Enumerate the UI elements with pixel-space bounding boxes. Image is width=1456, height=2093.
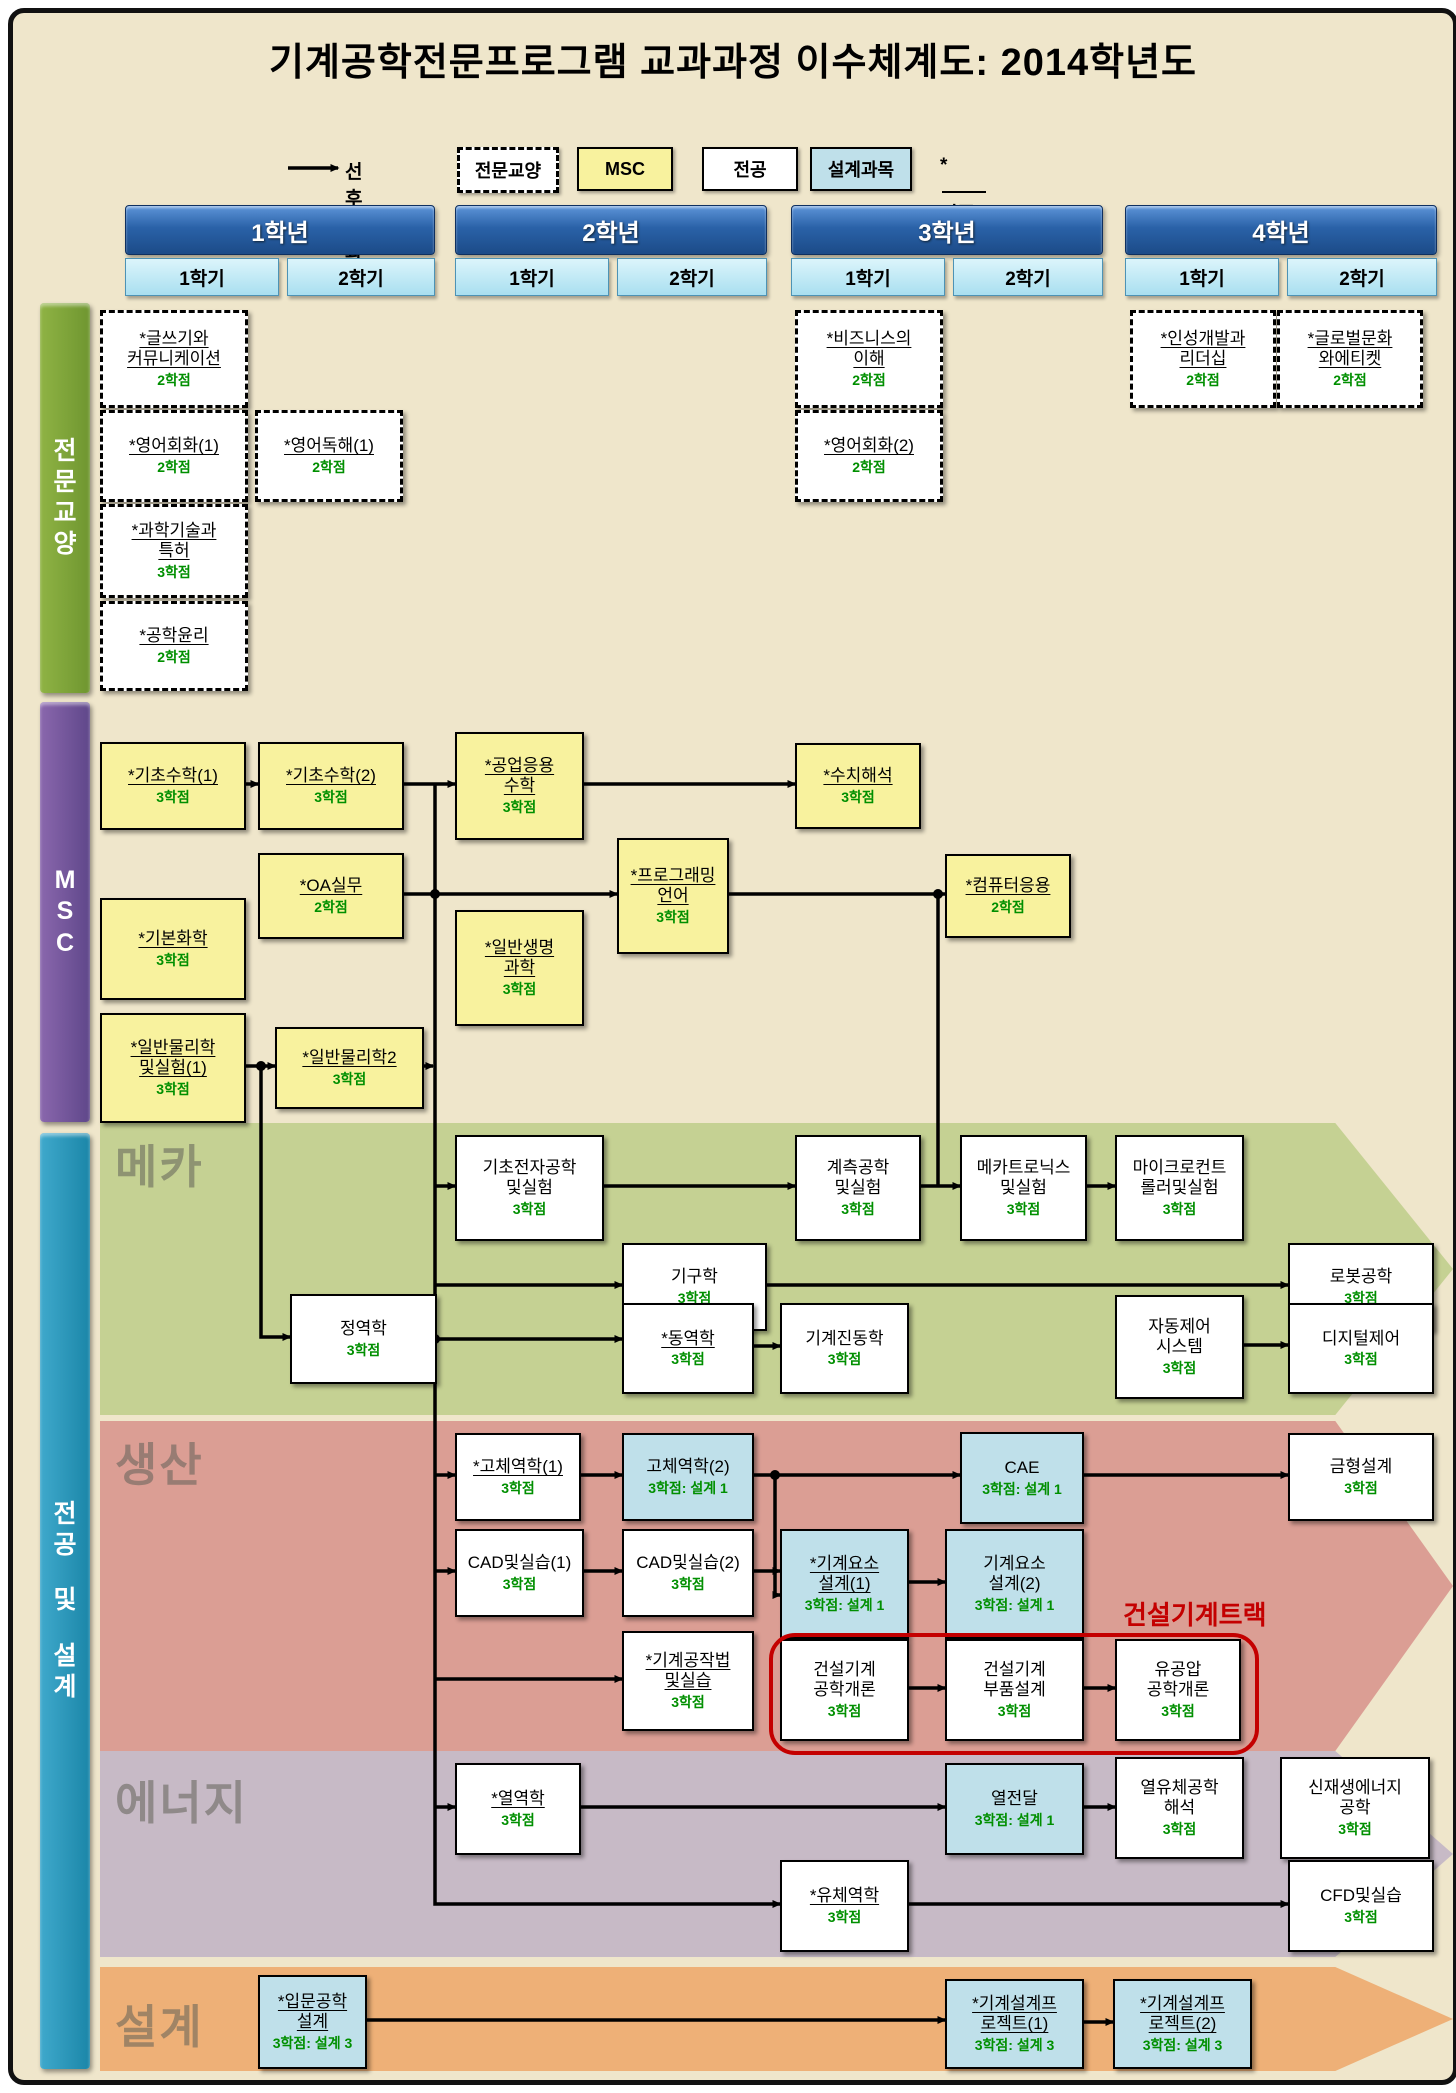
sidebar-char: 문 (53, 467, 76, 498)
course-box-mech-design-project-2: *기계설계프로젝트(2)3학점: 설계 3 (1113, 1979, 1252, 2069)
course-name: 언어 (657, 886, 688, 907)
course-credit: 2학점 (157, 649, 191, 666)
course-box-cad-practice-1: CAD및실습(1)3학점 (455, 1529, 584, 1617)
semester-header-2-2: 2학기 (617, 258, 767, 296)
course-name: 과학 (504, 958, 535, 979)
course-name: 기구학 (671, 1267, 718, 1288)
band-label-design: 설계 (115, 1991, 204, 2057)
sidebar-msc: MSC (40, 702, 90, 1122)
sidebar-char: M (55, 865, 76, 896)
course-name: 기계요소 (983, 1554, 1046, 1575)
semester-header-3-2: 2학기 (953, 258, 1103, 296)
course-credit: 2학점 (852, 372, 886, 389)
course-box-heat-transfer: 열전달3학점: 설계 1 (945, 1763, 1084, 1855)
course-name: 계측공학 (827, 1158, 890, 1179)
course-box-digital-control: 디지털제어3학점 (1288, 1303, 1434, 1394)
course-box-basic-math-2: *기초수학(2)3학점 (258, 742, 404, 830)
construction-track-outline (769, 1633, 1259, 1755)
sidebar-liberal-arts: 전문교양 (40, 303, 90, 693)
course-name: *입문공학 (278, 1992, 347, 2013)
course-credit: 3학점: 설계 1 (982, 1481, 1062, 1498)
course-name: *기본화학 (138, 929, 207, 950)
legend-cert-star: * (940, 155, 947, 176)
course-box-statics: 정역학3학점 (290, 1294, 437, 1384)
course-credit: 3학점 (841, 789, 875, 806)
course-credit: 3학점 (1007, 1201, 1041, 1218)
page-frame: 기계공학전문프로그램 교과과정 이수체계도: 2014학년도 선후수과목 전문교… (8, 8, 1456, 2085)
course-credit: 3학점 (501, 1480, 535, 1497)
course-credit: 3학점: 설계 1 (975, 1812, 1055, 1829)
course-name: *비즈니스의 (827, 329, 912, 350)
legend-major-label: 전공 (733, 156, 766, 182)
course-name: *일반물리학2 (302, 1048, 396, 1069)
course-box-solid-mechanics-2: 고체역학(2)3학점: 설계 1 (622, 1433, 754, 1521)
course-credit: 3학점 (656, 909, 690, 926)
course-box-general-physics-lab-1: *일반물리학및실험(1)3학점 (100, 1013, 246, 1123)
course-box-dynamics: *동역학3학점 (622, 1303, 754, 1394)
diagram-stage: 기계공학전문프로그램 교과과정 이수체계도: 2014학년도 선후수과목 전문교… (8, 8, 1456, 2085)
course-name: *일반생명 (485, 938, 554, 959)
year-header-2: 2학년 (455, 205, 767, 255)
course-name: *영어회화(2) (824, 436, 914, 457)
course-name: *영어독해(1) (284, 436, 374, 457)
course-credit: 3학점 (347, 1342, 381, 1359)
course-box-science-tech-patent: *과학기술과특허3학점 (100, 504, 248, 598)
legend-liberal-box: 전문교양 (457, 147, 559, 193)
course-name: *컴퓨터응용 (966, 876, 1051, 897)
course-box-engineering-math: *공업응용수학3학점 (455, 732, 584, 840)
sidebar-char: C (56, 928, 74, 959)
course-name: *기초수학(1) (128, 766, 218, 787)
sidebar-char: 전 (53, 1499, 76, 1530)
course-credit: 3학점 (828, 1351, 862, 1368)
course-name: 열유체공학 (1140, 1778, 1218, 1799)
course-name: *인성개발과 (1161, 329, 1246, 350)
band-energy (100, 1751, 1453, 1957)
course-name: 설계 (297, 2012, 328, 2033)
course-name: *글로벌문화 (1308, 329, 1393, 350)
course-name: 로젝트(2) (1149, 2014, 1217, 2035)
page-title: 기계공학전문프로그램 교과과정 이수체계도: 2014학년도 (8, 31, 1456, 86)
course-name: CFD및실습 (1320, 1886, 1402, 1907)
course-credit: 3학점: 설계 1 (975, 1597, 1055, 1614)
year-header-1: 1학년 (125, 205, 435, 255)
semester-header-4-1: 1학기 (1125, 258, 1279, 296)
semester-header-1-1: 1학기 (125, 258, 279, 296)
course-name: 이해 (853, 349, 884, 370)
course-credit: 3학점 (314, 789, 348, 806)
course-name: 정역학 (340, 1319, 387, 1340)
course-credit: 3학점 (503, 1576, 537, 1593)
course-box-intro-engineering-design: *입문공학설계3학점: 설계 3 (258, 1975, 367, 2069)
course-name: 및실습 (665, 1671, 712, 1692)
course-name: 메카트로닉스 (977, 1158, 1071, 1179)
legend-liberal-label: 전문교양 (475, 157, 541, 183)
course-name: CAD및실습(2) (636, 1553, 740, 1574)
course-box-programming-language: *프로그래밍언어3학점 (617, 838, 729, 954)
course-name: 설계(2) (988, 1574, 1040, 1595)
semester-header-4-2: 2학기 (1287, 258, 1437, 296)
course-credit: 3학점 (1163, 1201, 1197, 1218)
course-credit: 2학점 (312, 459, 346, 476)
course-box-automatic-control-systems: 자동제어시스템3학점 (1115, 1295, 1244, 1399)
course-name: *기계공작법 (646, 1651, 731, 1672)
course-credit: 2학점 (1186, 372, 1220, 389)
course-name: *공업응용 (485, 756, 554, 777)
band-label-energy: 에너지 (115, 1767, 248, 1833)
course-box-oa-practice: *OA실무2학점 (258, 853, 404, 939)
course-box-cfd-practice: CFD및실습3학점 (1288, 1860, 1434, 1952)
course-box-solid-mechanics-1: *고체역학(1)3학점 (455, 1433, 581, 1521)
course-name: 마이크로컨트 (1133, 1158, 1227, 1179)
course-name: 커뮤니케이션 (127, 349, 221, 370)
course-box-machine-element-design-1: *기계요소설계(1)3학점: 설계 1 (780, 1529, 909, 1639)
course-name: *열역학 (491, 1789, 545, 1810)
course-box-instrumentation-lab: 계측공학및실험3학점 (795, 1135, 921, 1241)
course-credit: 3학점: 설계 1 (805, 1597, 885, 1614)
course-credit: 3학점 (1163, 1821, 1197, 1838)
band-label-mechatronics: 메카 (115, 1131, 204, 1197)
junction-dot (430, 889, 440, 899)
sidebar-char: 공 (53, 1530, 76, 1561)
course-box-english-reading-1: *영어독해(1)2학점 (255, 410, 403, 502)
course-name: *고체역학(1) (473, 1457, 563, 1478)
legend-cert-line (942, 177, 986, 193)
course-name: 리더십 (1180, 349, 1227, 370)
course-name: CAD및실습(1) (468, 1553, 572, 1574)
junction-dot (933, 889, 943, 899)
course-name: 기초전자공학 (483, 1158, 577, 1179)
course-name: 열전달 (991, 1789, 1038, 1810)
course-name: 및실험 (506, 1178, 553, 1199)
course-credit: 3학점 (671, 1694, 705, 1711)
course-name: *수치해석 (823, 766, 892, 787)
course-name: 금형설계 (1330, 1457, 1393, 1478)
course-box-microcontroller-lab: 마이크로컨트롤러및실험3학점 (1115, 1135, 1244, 1241)
course-credit: 3학점 (157, 564, 191, 581)
course-name: *유체역학 (810, 1886, 879, 1907)
year-header-4: 4학년 (1125, 205, 1437, 255)
course-name: 자동제어 (1148, 1317, 1211, 1338)
course-name: 시스템 (1156, 1337, 1203, 1358)
course-credit: 3학점 (1344, 1480, 1378, 1497)
sidebar-char: 및 (53, 1585, 76, 1616)
course-name: *일반물리학 (131, 1038, 216, 1059)
course-name: *과학기술과 (132, 521, 217, 542)
semester-header-3-1: 1학기 (791, 258, 945, 296)
course-name: 공학 (1339, 1798, 1370, 1819)
construction-track-label: 건설기계트랙 (1123, 1595, 1267, 1632)
legend-design-label: 설계과목 (828, 156, 894, 182)
course-credit: 3학점: 설계 1 (648, 1480, 728, 1497)
sidebar-char: 전 (53, 436, 76, 467)
course-name: *기계요소 (810, 1554, 879, 1575)
course-box-machine-element-design-2: 기계요소설계(2)3학점: 설계 1 (945, 1529, 1084, 1639)
course-credit: 3학점 (503, 799, 537, 816)
course-name: 및실험 (1000, 1178, 1047, 1199)
course-credit: 3학점: 설계 3 (975, 2037, 1055, 2054)
course-credit: 2학점 (1333, 372, 1367, 389)
course-box-english-conv-2: *영어회화(2)2학점 (795, 410, 943, 502)
course-name: 기계진동학 (805, 1329, 883, 1350)
course-box-mech-design-project-1: *기계설계프로젝트(1)3학점: 설계 3 (945, 1979, 1084, 2069)
sidebar-char: 계 (53, 1672, 76, 1703)
course-name: 로봇공학 (1330, 1267, 1393, 1288)
course-name: 고체역학(2) (646, 1457, 729, 1478)
course-credit: 3학점 (1344, 1351, 1378, 1368)
course-name: *프로그래밍 (631, 866, 716, 887)
legend-msc-label: MSC (605, 159, 645, 180)
course-name: *기계설계프 (972, 1994, 1057, 2015)
legend-msc-box: MSC (577, 147, 673, 191)
course-name: *기초수학(2) (286, 766, 376, 787)
course-credit: 3학점 (841, 1201, 875, 1218)
course-name: 해석 (1164, 1798, 1195, 1819)
legend-design-box: 설계과목 (810, 147, 912, 191)
course-box-general-life-science: *일반생명과학3학점 (455, 910, 584, 1026)
course-box-thermofluid-analysis: 열유체공학해석3학점 (1115, 1757, 1244, 1859)
course-credit: 2학점 (314, 899, 348, 916)
course-box-general-physics-2: *일반물리학23학점 (275, 1027, 424, 1109)
course-credit: 3학점 (501, 1812, 535, 1829)
course-credit: 3학점 (503, 981, 537, 998)
sidebar-char: 양 (53, 529, 76, 560)
course-name: 디지털제어 (1322, 1329, 1400, 1350)
course-box-computer-application: *컴퓨터응용2학점 (945, 854, 1071, 938)
junction-dot (256, 1061, 266, 1071)
course-box-fluid-mechanics: *유체역학3학점 (780, 1860, 909, 1952)
course-credit: 3학점 (671, 1351, 705, 1368)
course-box-global-culture-etiquette: *글로벌문화와에티켓2학점 (1277, 310, 1423, 408)
course-box-basic-electronics-lab: 기초전자공학및실험3학점 (455, 1135, 604, 1241)
course-credit: 3학점 (333, 1071, 367, 1088)
course-credit: 3학점 (156, 952, 190, 969)
course-name: 특허 (158, 541, 189, 562)
course-box-machine-shop-practice: *기계공작법및실습3학점 (622, 1631, 754, 1731)
course-credit: 3학점 (1344, 1909, 1378, 1926)
course-box-writing-communication: *글쓰기와커뮤니케이션2학점 (100, 310, 248, 408)
course-box-basic-math-1: *기초수학(1)3학점 (100, 742, 246, 830)
course-box-personality-leadership: *인성개발과리더십2학점 (1130, 310, 1276, 408)
course-name: *동역학 (661, 1329, 715, 1350)
course-credit: 3학점 (1338, 1821, 1372, 1838)
course-name: *글쓰기와 (139, 329, 208, 350)
course-name: *공학윤리 (139, 626, 208, 647)
year-header-3: 3학년 (791, 205, 1103, 255)
course-name: 및실험(1) (139, 1058, 207, 1079)
course-name: CAE (1005, 1458, 1040, 1479)
course-name: *OA실무 (300, 876, 362, 897)
band-label-production: 생산 (115, 1429, 204, 1495)
course-credit: 3학점: 설계 3 (1143, 2037, 1223, 2054)
course-name: *영어회화(1) (129, 436, 219, 457)
legend-major-box: 전공 (702, 147, 798, 191)
course-box-business-understanding: *비즈니스의이해2학점 (795, 310, 943, 408)
course-credit: 2학점 (157, 372, 191, 389)
course-box-mechanical-vibrations: 기계진동학3학점 (780, 1303, 909, 1394)
course-name: 롤러및실험 (1140, 1178, 1218, 1199)
course-box-renewable-energy: 신재생에너지공학3학점 (1280, 1757, 1430, 1859)
course-credit: 3학점 (156, 789, 190, 806)
semester-header-1-2: 2학기 (287, 258, 435, 296)
course-name: 신재생에너지 (1308, 1778, 1402, 1799)
course-name: 수학 (504, 776, 535, 797)
course-box-cad-practice-2: CAD및실습(2)3학점 (622, 1529, 754, 1617)
course-credit: 3학점: 설계 3 (273, 2035, 353, 2052)
sidebar-char: 설 (53, 1641, 76, 1672)
semester-header-2-1: 1학기 (455, 258, 609, 296)
course-name: 와에티켓 (1319, 349, 1382, 370)
course-box-engineering-ethics: *공학윤리2학점 (100, 601, 248, 691)
course-box-mechatronics-lab: 메카트로닉스및실험3학점 (960, 1135, 1087, 1241)
course-box-thermodynamics: *열역학3학점 (455, 1763, 581, 1855)
course-credit: 3학점 (828, 1909, 862, 1926)
course-box-numerical-analysis: *수치해석3학점 (795, 743, 921, 829)
sidebar-major-design: 전공및설계 (40, 1133, 90, 2069)
course-credit: 3학점 (671, 1576, 705, 1593)
course-credit: 2학점 (157, 459, 191, 476)
course-box-basic-chemistry: *기본화학3학점 (100, 898, 246, 1000)
sidebar-char: 교 (53, 498, 76, 529)
course-name: 및실험 (835, 1178, 882, 1199)
course-credit: 3학점 (1163, 1360, 1197, 1377)
course-credit: 3학점 (513, 1201, 547, 1218)
course-name: *기계설계프 (1140, 1994, 1225, 2015)
course-name: 설계(1) (818, 1574, 870, 1595)
course-name: 로젝트(1) (981, 2014, 1049, 2035)
course-credit: 2학점 (852, 459, 886, 476)
course-credit: 3학점 (156, 1081, 190, 1098)
course-box-mold-design: 금형설계3학점 (1288, 1433, 1434, 1521)
course-box-english-conv-1: *영어회화(1)2학점 (100, 410, 248, 502)
course-box-cae: CAE3학점: 설계 1 (960, 1432, 1084, 1524)
course-credit: 2학점 (991, 899, 1025, 916)
sidebar-char: S (57, 896, 74, 927)
